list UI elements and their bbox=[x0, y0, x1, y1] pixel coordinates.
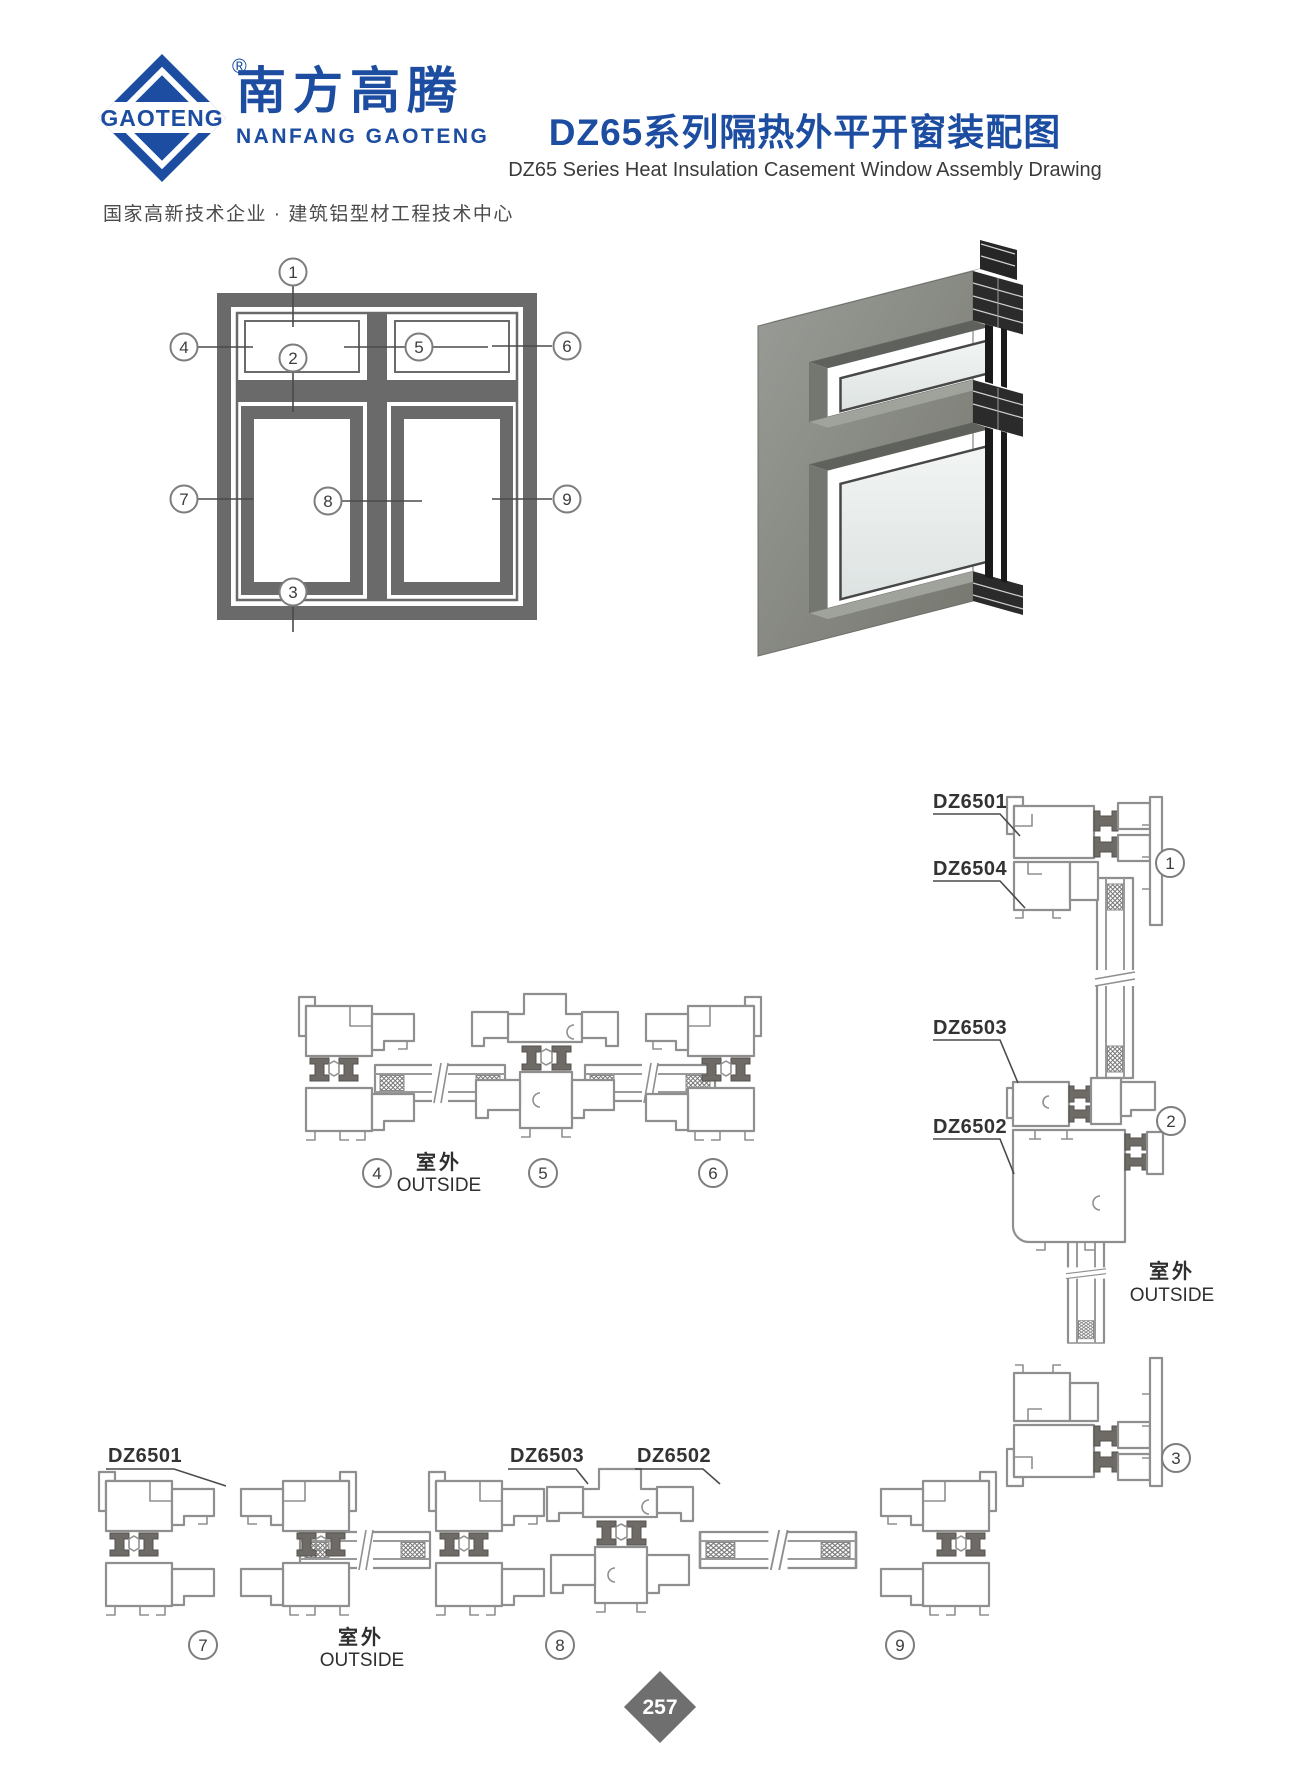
profile-label-dz6503: DZ6503 bbox=[510, 1445, 584, 1467]
elevation-callout-3: 3 bbox=[280, 579, 307, 606]
svg-text:3: 3 bbox=[288, 583, 297, 602]
page-number: 257 bbox=[642, 1696, 677, 1719]
section-callout-8: 8 bbox=[546, 1631, 574, 1659]
profile-section-9 bbox=[881, 1472, 996, 1615]
svg-text:8: 8 bbox=[555, 1636, 564, 1655]
page-title-cn: DZ65系列隔热外平开窗装配图 bbox=[505, 112, 1105, 155]
brand-name-latin: NANFANG GAOTENG bbox=[236, 125, 489, 149]
catalog-page: GAOTENG ® 南方高腾 NANFANG GAOTENG 国家高新技术企业 … bbox=[0, 0, 1300, 1775]
outside-label-en: OUTSIDE bbox=[397, 1175, 481, 1196]
brand-text: 南方高腾 NANFANG GAOTENG bbox=[236, 66, 489, 149]
svg-text:5: 5 bbox=[414, 338, 423, 357]
section-callout-7: 7 bbox=[189, 1631, 217, 1659]
elevation-callout-2: 2 bbox=[280, 345, 307, 372]
logo-band: GAOTENG bbox=[98, 102, 226, 133]
svg-text:6: 6 bbox=[562, 337, 571, 356]
outside-label-en: OUTSIDE bbox=[320, 1650, 404, 1671]
page-title: DZ65系列隔热外平开窗装配图 DZ65 Series Heat Insulat… bbox=[505, 112, 1105, 182]
svg-text:8: 8 bbox=[323, 492, 332, 511]
section-callout-5: 5 bbox=[529, 1159, 557, 1187]
window-elevation-drawing: 1 2 3 4 5 6 7 8 9 bbox=[130, 232, 590, 652]
glass-unit-vertical bbox=[1095, 878, 1135, 1078]
elevation-callout-6: 6 bbox=[554, 333, 581, 360]
svg-text:5: 5 bbox=[538, 1164, 547, 1183]
svg-text:7: 7 bbox=[179, 490, 188, 509]
svg-text:6: 6 bbox=[708, 1164, 717, 1183]
render-cut-sill bbox=[973, 571, 1023, 615]
profile-label-dz6503: DZ6503 bbox=[933, 1017, 1007, 1039]
section-callout-6: 6 bbox=[699, 1159, 727, 1187]
elevation-callout-4: 4 bbox=[171, 334, 198, 361]
profile-label-dz6501: DZ6501 bbox=[933, 791, 1007, 813]
page-number-badge: 257 bbox=[618, 1665, 702, 1749]
svg-text:1: 1 bbox=[1165, 854, 1174, 873]
svg-text:3: 3 bbox=[1171, 1449, 1180, 1468]
sash-section bbox=[241, 1472, 356, 1615]
company-tagline: 国家高新技术企业 · 建筑铝型材工程技术中心 bbox=[103, 199, 514, 226]
outside-label-en: OUTSIDE bbox=[1130, 1285, 1214, 1306]
profile-label-dz6502: DZ6502 bbox=[933, 1116, 1007, 1138]
elevation-callout-1: 1 bbox=[280, 259, 307, 286]
svg-text:4: 4 bbox=[372, 1164, 381, 1183]
elevation-callout-7: 7 bbox=[171, 486, 198, 513]
sill-section-group bbox=[1007, 1358, 1162, 1486]
section-callout-9: 9 bbox=[886, 1631, 914, 1659]
elevation-callout-9: 9 bbox=[554, 486, 581, 513]
horizontal-section-row-top: 4 室外 OUTSIDE 5 6 bbox=[235, 983, 765, 1203]
svg-text:9: 9 bbox=[895, 1636, 904, 1655]
svg-text:7: 7 bbox=[198, 1636, 207, 1655]
sash-section bbox=[429, 1472, 544, 1615]
profile-section-7 bbox=[99, 1472, 214, 1615]
section-callout-3: 3 bbox=[1162, 1444, 1190, 1472]
elevation-callout-8: 8 bbox=[315, 488, 342, 515]
outside-label-cn: 室外 bbox=[416, 1150, 462, 1174]
svg-text:2: 2 bbox=[1166, 1112, 1175, 1131]
svg-text:2: 2 bbox=[288, 349, 297, 368]
profile-label-dz6504: DZ6504 bbox=[933, 858, 1008, 880]
svg-text:1: 1 bbox=[288, 263, 297, 282]
outside-label-cn: 室外 bbox=[1149, 1259, 1195, 1283]
elevation-transom bbox=[237, 380, 517, 402]
svg-text:4: 4 bbox=[179, 338, 188, 357]
outside-label-cn: 室外 bbox=[338, 1625, 384, 1649]
profile-label-dz6501: DZ6501 bbox=[108, 1445, 182, 1467]
transom-section-group bbox=[1007, 1078, 1163, 1250]
section-callout-4: 4 bbox=[363, 1159, 391, 1187]
assembly-3d-render bbox=[745, 228, 1045, 673]
logo-wordmark: GAOTENG bbox=[100, 105, 223, 131]
profile-section-8 bbox=[547, 1469, 693, 1612]
elevation-callout-5: 5 bbox=[406, 334, 433, 361]
svg-text:9: 9 bbox=[562, 490, 571, 509]
section-callout-2: 2 bbox=[1157, 1107, 1185, 1135]
profile-label-dz6502: DZ6502 bbox=[637, 1445, 711, 1467]
page-title-en: DZ65 Series Heat Insulation Casement Win… bbox=[505, 159, 1105, 182]
brand-name-cn: 南方高腾 bbox=[236, 66, 489, 116]
company-logo-icon: GAOTENG ® bbox=[92, 53, 252, 189]
glass-unit bbox=[700, 1530, 856, 1570]
horizontal-section-row-bottom: DZ6501 DZ6503 DZ6502 7 室外 OUTSIDE 8 9 bbox=[80, 1438, 1020, 1673]
head-section-group bbox=[1007, 797, 1162, 925]
section-callout-1: 1 bbox=[1156, 849, 1184, 877]
